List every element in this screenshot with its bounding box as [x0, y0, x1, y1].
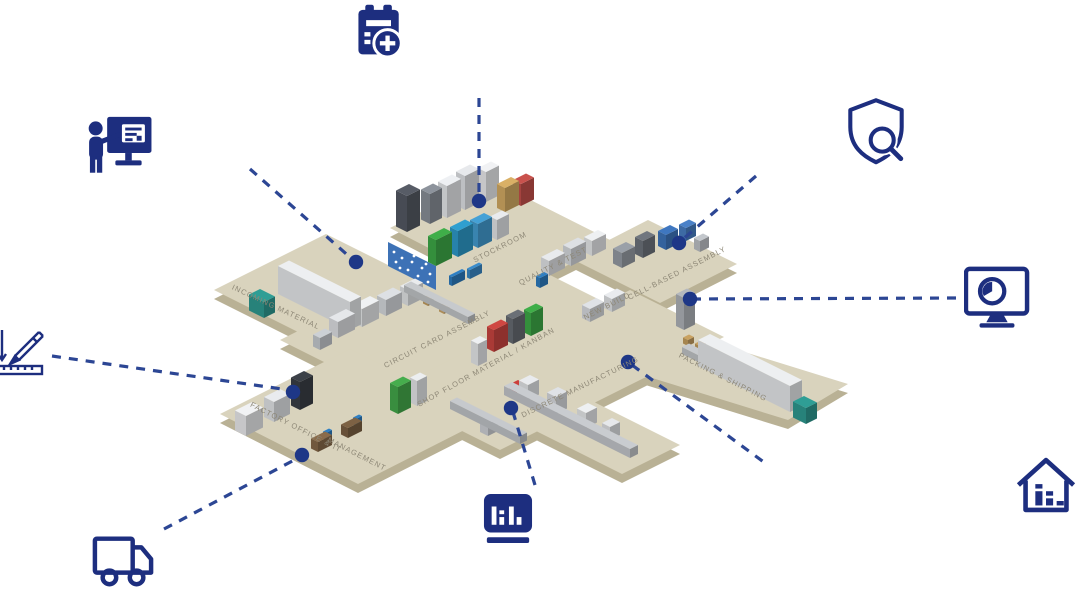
connector-delivery	[164, 458, 298, 529]
factory-illustration	[0, 0, 1080, 599]
dashboard-bar-chart-icon[interactable]	[483, 494, 533, 544]
hotspot-cell-assembly[interactable]	[672, 236, 686, 250]
connector-design	[52, 356, 289, 390]
hotspot-discrete-end[interactable]	[621, 355, 635, 369]
isometric-factory-map: STOCKROOM QUALITY & TEST CELL-BASED ASSE…	[0, 0, 1080, 599]
connector-monitoring	[695, 298, 956, 299]
hotspot-new-build[interactable]	[683, 292, 697, 306]
presenter-screen-icon[interactable]	[82, 112, 152, 176]
calendar-add-icon[interactable]	[355, 3, 403, 63]
factory-floor	[214, 162, 848, 494]
delivery-truck-icon[interactable]	[90, 529, 156, 591]
shield-search-icon[interactable]	[845, 97, 907, 169]
monitor-clock-icon[interactable]	[964, 266, 1030, 330]
hotspot-management[interactable]	[295, 448, 309, 462]
hotspot-receiving[interactable]	[349, 255, 363, 269]
hotspot-stockroom[interactable]	[472, 194, 486, 208]
house-analytics-icon[interactable]	[1014, 452, 1078, 518]
hotspot-discrete-line[interactable]	[504, 401, 518, 415]
hotspot-factory-office[interactable]	[286, 385, 300, 399]
pencil-ruler-icon[interactable]	[0, 328, 47, 376]
